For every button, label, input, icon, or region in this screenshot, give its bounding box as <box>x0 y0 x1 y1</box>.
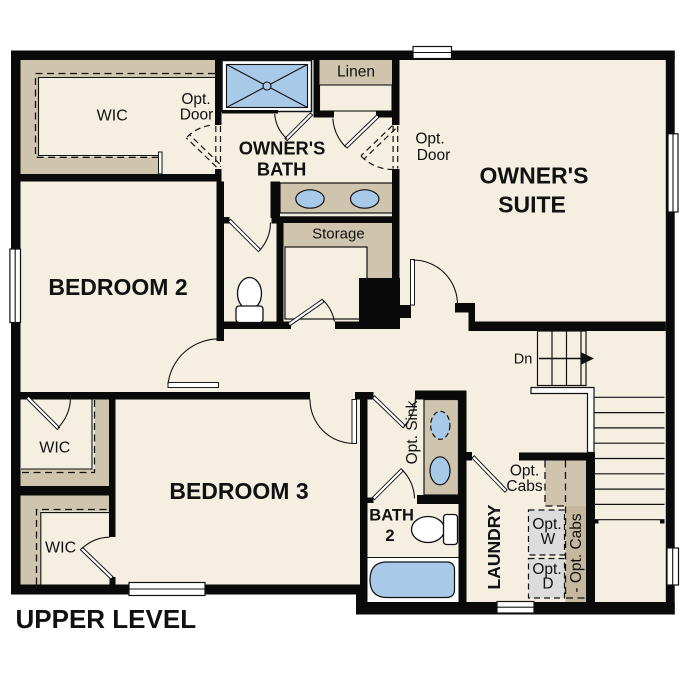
svg-text:2: 2 <box>385 527 394 545</box>
svg-text:Door: Door <box>180 107 214 124</box>
svg-text:Opt. Sink: Opt. Sink <box>404 400 421 464</box>
svg-text:OWNER'S: OWNER'S <box>239 138 326 159</box>
svg-text:Opt.: Opt. <box>181 91 210 108</box>
svg-text:SUITE: SUITE <box>498 192 566 218</box>
svg-text:WIC: WIC <box>97 108 128 125</box>
svg-text:OWNER'S: OWNER'S <box>480 163 589 189</box>
svg-text:WIC: WIC <box>45 540 76 557</box>
svg-text:Opt.: Opt. <box>415 131 444 148</box>
svg-text:LAUNDRY: LAUNDRY <box>484 504 504 589</box>
svg-text:BEDROOM 2: BEDROOM 2 <box>48 274 187 300</box>
svg-text:W: W <box>541 531 556 548</box>
svg-text:BEDROOM 3: BEDROOM 3 <box>169 478 308 504</box>
svg-text:Linen: Linen <box>337 64 375 81</box>
svg-text:BATH: BATH <box>369 506 414 524</box>
svg-text:Storage: Storage <box>312 226 365 243</box>
svg-text:Door: Door <box>417 147 451 164</box>
svg-text:- Opt. Cabs: - Opt. Cabs <box>568 513 585 592</box>
svg-text:Opt.: Opt. <box>510 463 539 480</box>
svg-text:BATH: BATH <box>257 159 306 180</box>
svg-text:UPPER LEVEL: UPPER LEVEL <box>16 604 197 634</box>
svg-text:WIC: WIC <box>39 440 70 457</box>
svg-text:Cabs: Cabs <box>506 478 542 495</box>
svg-text:Dn: Dn <box>514 352 533 368</box>
svg-text:D: D <box>542 576 553 593</box>
